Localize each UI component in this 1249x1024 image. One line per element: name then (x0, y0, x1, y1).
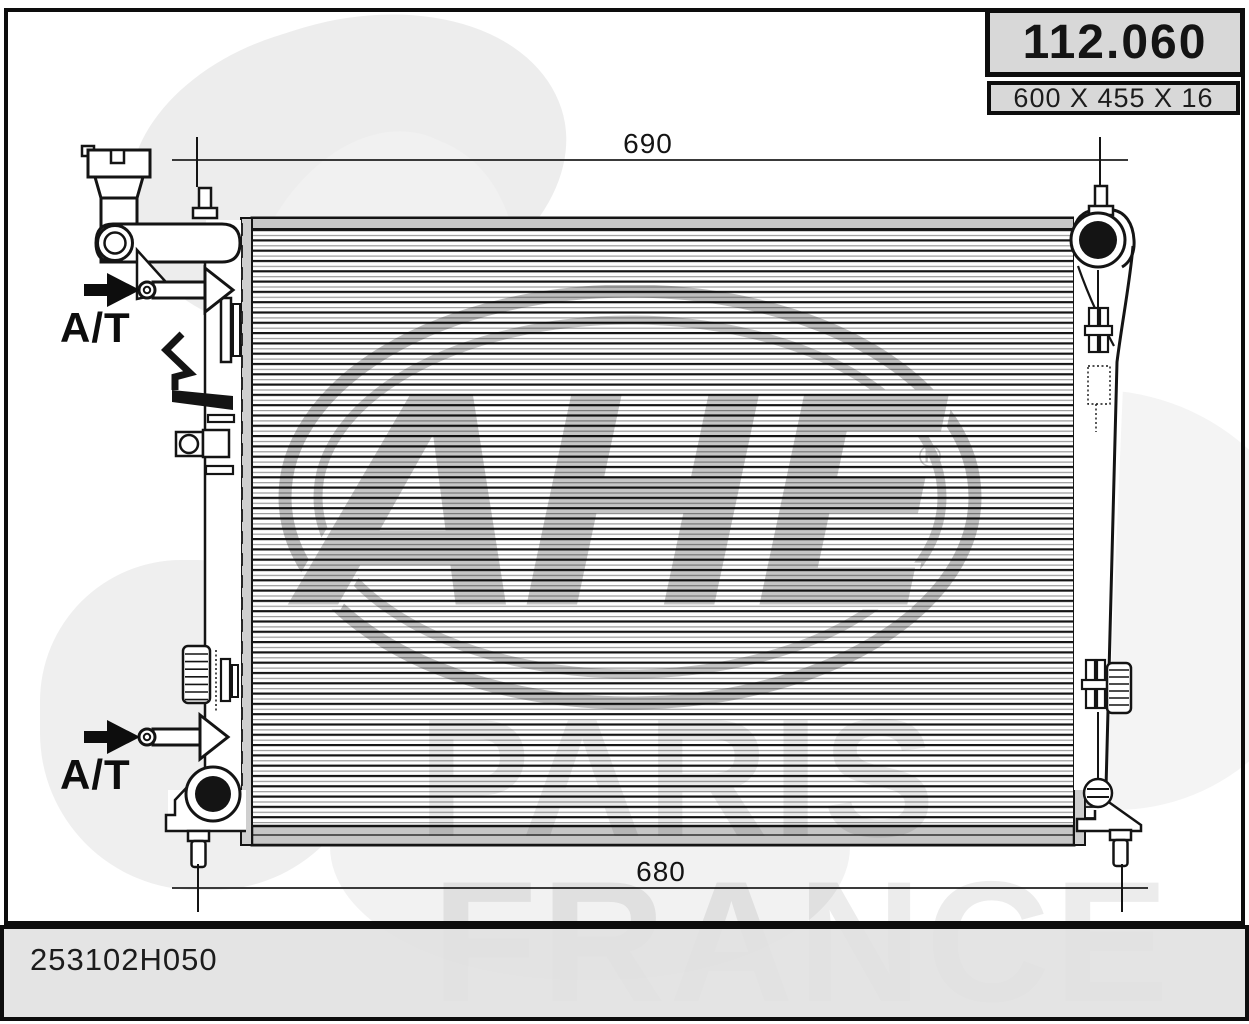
mounting-lug (176, 430, 229, 457)
bottom-right-bracket (1077, 779, 1141, 866)
size-spec-box: 600 X 455 X 16 (987, 81, 1240, 115)
screw-head-icon (1084, 779, 1112, 807)
size-spec: 600 X 455 X 16 (1013, 83, 1213, 114)
part-number-box: 112.060 (985, 8, 1245, 77)
tank-rib (206, 466, 233, 474)
right-clip-lower (1082, 660, 1109, 708)
drain-plug-right (1107, 663, 1131, 713)
flow-label-lower: A/T (60, 751, 131, 799)
footer-band: 253102H050 (0, 925, 1249, 1021)
tank-rib (208, 415, 234, 422)
catalog-sheet: 690 680 A/T A/T AHE ® PARIS FRANCE 112.0… (0, 0, 1249, 1024)
flow-arrow-upper-icon (84, 273, 140, 307)
footer-reference: 253102H050 (30, 942, 218, 978)
mounting-pin-bottom-right (1114, 840, 1128, 866)
mounting-pin-top-left (193, 188, 217, 218)
flow-label-upper: A/T (60, 304, 131, 352)
mounting-pin-bottom-left (192, 841, 206, 867)
dimension-label-top: 690 (598, 128, 698, 160)
bottom-left-bracket (166, 767, 246, 867)
mounting-pin-top-right (1089, 186, 1113, 215)
right-tank (1071, 186, 1141, 866)
part-number: 112.060 (1023, 15, 1208, 70)
radiator-core (233, 218, 1095, 845)
dimension-label-bottom: 680 (611, 856, 711, 888)
flow-arrow-lower-icon (84, 720, 140, 754)
oil-cooler-fitting-upper (139, 268, 240, 362)
